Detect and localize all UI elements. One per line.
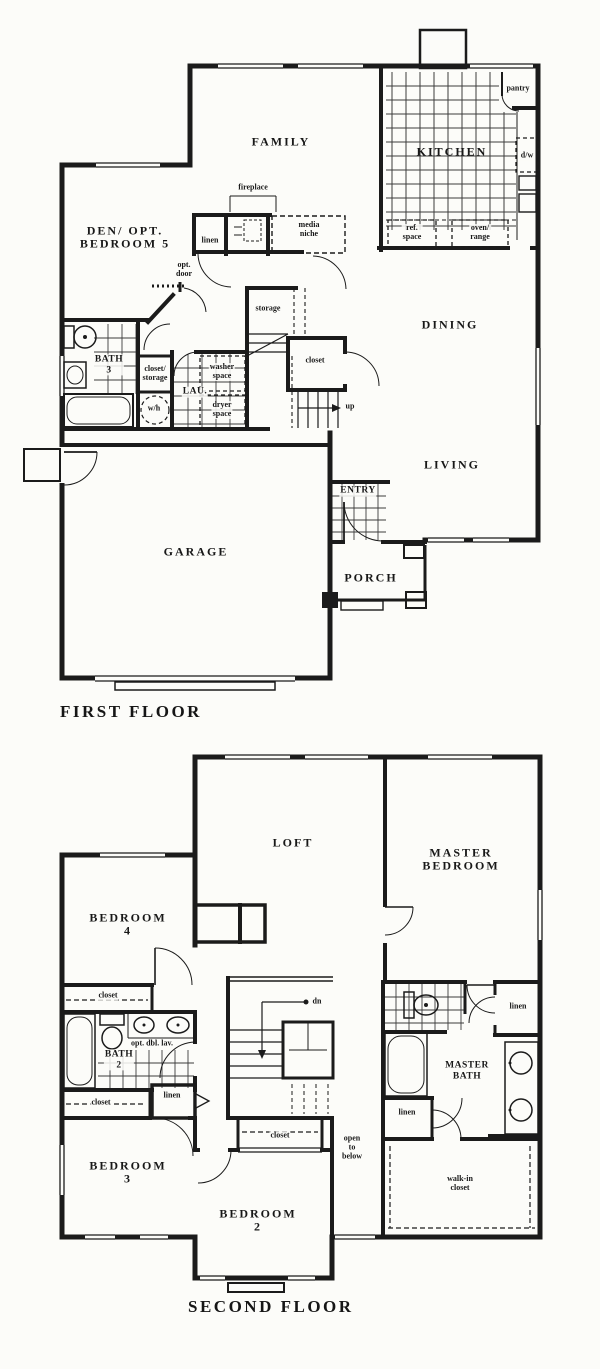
bathtub — [64, 1014, 95, 1088]
washer-space-outline — [200, 356, 245, 391]
first-floor-title: FIRST FLOOR — [60, 702, 202, 722]
porch-pillar — [404, 545, 424, 558]
water-heater-outline — [141, 396, 169, 424]
kitchen-tile-grid — [386, 72, 516, 230]
master-toilet-tile-grid — [385, 984, 464, 1030]
bath3-tile-grid — [94, 324, 137, 394]
chimney-outline — [420, 30, 466, 68]
first-floor-interior-walls — [62, 66, 538, 542]
closet2-sliding-doors — [238, 1148, 322, 1152]
walk-in-closet-rods — [388, 1146, 535, 1228]
master-bathtub — [385, 1032, 427, 1096]
media-niche-outline — [272, 216, 345, 253]
kitchen-sink-basin — [519, 194, 536, 212]
oven-range-outline — [452, 220, 508, 247]
fireplace-assembly — [230, 196, 345, 253]
first-floor-windows — [57, 61, 543, 690]
porch-step — [341, 601, 383, 610]
bath3-fixtures — [64, 326, 245, 428]
bathtub — [64, 394, 133, 427]
linen-pointer — [196, 1094, 209, 1108]
dryer-space-outline — [200, 395, 245, 428]
linen-cabinet — [152, 1085, 195, 1118]
loft-cabinet — [195, 905, 265, 942]
first-floor-plan — [24, 30, 543, 690]
floor-plan-drawing — [0, 0, 600, 1369]
bath2-tile-grid — [98, 1050, 194, 1088]
refrigerator-space-outline — [388, 220, 436, 247]
double-vanity — [505, 1042, 538, 1134]
second-floor-title: SECOND FLOOR — [188, 1297, 354, 1317]
up-arrow-head — [332, 404, 341, 412]
porch-pillar — [322, 592, 338, 608]
first-floor-stairs — [247, 288, 341, 428]
second-floor-plan — [57, 752, 545, 1292]
garage-door-sill — [115, 682, 275, 690]
second-floor-stairs — [228, 977, 333, 1114]
first-floor-exterior-walls — [62, 66, 538, 678]
kitchen-sink-basin — [519, 176, 536, 190]
second-floor-exterior-walls — [62, 757, 540, 1278]
garage-side-door-landing — [24, 449, 60, 481]
porch-structure — [322, 545, 426, 610]
dishwasher-outline — [516, 138, 538, 172]
bedroom2-bay-window — [228, 1283, 284, 1292]
floor-plan-page: FAMILY KITCHEN pantry d/w fireplace DEN/… — [0, 0, 600, 1369]
entry-tile-grid — [332, 484, 386, 540]
master-bath-fixtures — [385, 992, 538, 1134]
second-floor-interior-walls — [62, 757, 540, 1237]
